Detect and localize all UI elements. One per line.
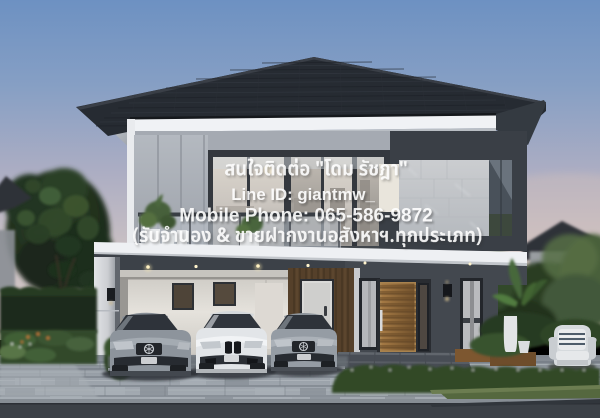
svg-text:Line ID: giantmw_: Line ID: giantmw_ bbox=[231, 185, 375, 204]
svg-text:Mobile Phone: 065-586-9872: Mobile Phone: 065-586-9872 bbox=[179, 206, 432, 227]
